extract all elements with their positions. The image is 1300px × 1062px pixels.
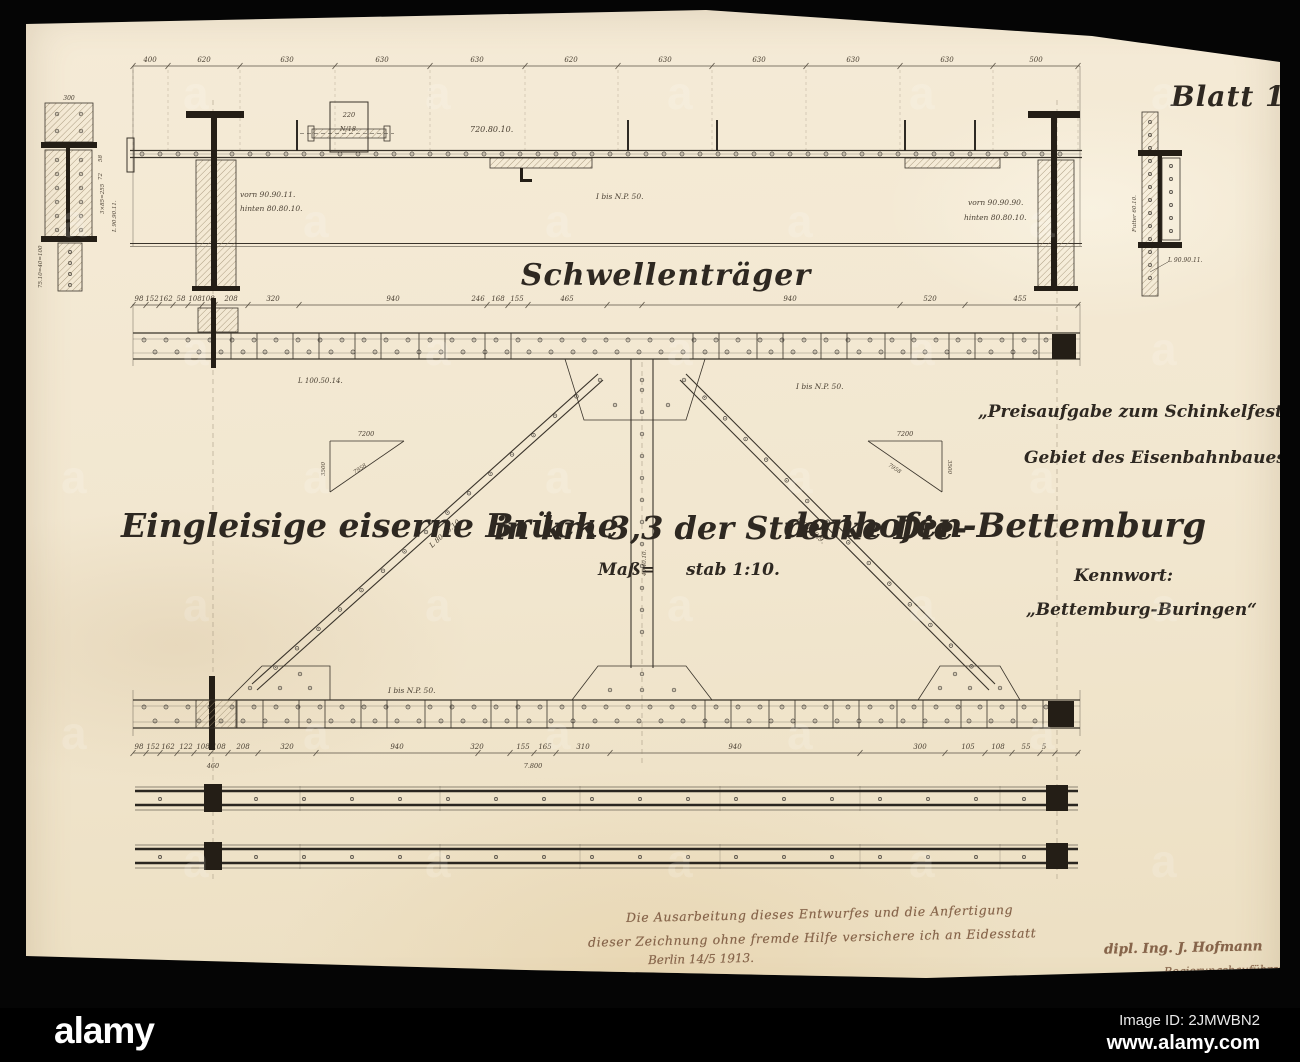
construction-lines bbox=[213, 100, 1057, 880]
rivet-dot bbox=[518, 340, 519, 341]
rivet-dot bbox=[320, 707, 321, 708]
splice-box bbox=[361, 700, 387, 728]
label-tri-left-hyp: 7958 bbox=[353, 463, 368, 476]
rivet-dot bbox=[540, 707, 541, 708]
rivet-dot bbox=[848, 340, 849, 341]
rivet-dot bbox=[688, 799, 689, 800]
rivet-dot bbox=[749, 352, 750, 353]
rivet-dot bbox=[661, 721, 662, 722]
dim-label: 620 bbox=[564, 56, 578, 64]
dim-label: 630 bbox=[375, 56, 389, 64]
rivet-dot bbox=[615, 405, 616, 406]
rivet-dot bbox=[804, 340, 805, 341]
rivet-dot bbox=[958, 340, 959, 341]
rivet-dot bbox=[551, 352, 552, 353]
label-detail-left-d5: 72 bbox=[98, 173, 104, 180]
rivet-dot bbox=[331, 352, 332, 353]
rivet-dot bbox=[815, 721, 816, 722]
rivet-dot bbox=[386, 340, 387, 341]
alamy-logo: alamy bbox=[54, 1010, 154, 1052]
dim-label: 122 bbox=[179, 743, 193, 751]
rivet-dot bbox=[1171, 231, 1172, 232]
rivet-dot bbox=[980, 707, 981, 708]
rivet-dot bbox=[595, 352, 596, 353]
drawing-sheet: 4006206306306306206306306306305009815216… bbox=[26, 10, 1280, 1002]
rivet-dot bbox=[903, 721, 904, 722]
rivet-dot bbox=[469, 493, 470, 494]
rivet-dot bbox=[430, 707, 431, 708]
rivet-dot bbox=[304, 799, 305, 800]
dim-label: 108 bbox=[188, 295, 202, 303]
rivet-dot bbox=[1171, 192, 1172, 193]
rivet-dot bbox=[496, 799, 497, 800]
label-chord-profile: I bis N.P. 50. bbox=[795, 382, 843, 391]
rivet-dot bbox=[892, 707, 893, 708]
rivet-dot bbox=[448, 857, 449, 858]
label-tri-left-top: 7200 bbox=[358, 430, 375, 438]
splice-box bbox=[961, 700, 987, 728]
rivet-dot bbox=[955, 674, 956, 675]
rivet-dot bbox=[617, 721, 618, 722]
rivet-dot bbox=[592, 799, 593, 800]
rivet-dot bbox=[361, 590, 362, 591]
rivet-dot bbox=[584, 340, 585, 341]
rivet-dot bbox=[672, 340, 673, 341]
rivet-dot bbox=[507, 352, 508, 353]
dim-label: 300 bbox=[913, 743, 927, 751]
label-box-profile: N/18. bbox=[339, 125, 358, 133]
dim-label: 320 bbox=[266, 295, 280, 303]
rivet-dot bbox=[771, 352, 772, 353]
rivet-dot bbox=[177, 721, 178, 722]
label-detail-left-d1: 3×85=255 bbox=[100, 183, 106, 214]
rivet-dot bbox=[400, 799, 401, 800]
handwritten-signature: dipl. Ing. J. Hofmann bbox=[1104, 938, 1263, 957]
rivet-dot bbox=[617, 352, 618, 353]
rivet-dot bbox=[991, 352, 992, 353]
rivet-dot bbox=[859, 352, 860, 353]
rivet-dot bbox=[265, 352, 266, 353]
label-box-width: 220 bbox=[342, 111, 355, 119]
rivet-dot bbox=[928, 857, 929, 858]
splice-box bbox=[491, 700, 517, 728]
rivet-dot bbox=[880, 857, 881, 858]
label-detail-left-300: 300 bbox=[63, 95, 75, 102]
rivet-dot bbox=[496, 707, 497, 708]
bottom-chord bbox=[133, 676, 1080, 750]
label-chord-angle: L 100.50.14. bbox=[297, 377, 343, 385]
rivet-dot bbox=[639, 721, 640, 722]
rivet-dot bbox=[936, 707, 937, 708]
scale-label-part1: Maß= bbox=[598, 560, 655, 580]
rivet-dot bbox=[650, 340, 651, 341]
rivet-dot bbox=[243, 721, 244, 722]
dim-label: 5 bbox=[1042, 743, 1047, 751]
rivet-dot bbox=[188, 340, 189, 341]
rivet-dot bbox=[727, 721, 728, 722]
rivet-dot bbox=[694, 707, 695, 708]
rivet-dot bbox=[304, 857, 305, 858]
rivet-dot bbox=[188, 707, 189, 708]
dimE: 9815216212210810820832094032015516531094… bbox=[131, 743, 1081, 756]
keyword-label: Kennwort: bbox=[1074, 566, 1173, 586]
rivet-dot bbox=[903, 352, 904, 353]
rivet-dot bbox=[881, 721, 882, 722]
rivet-dot bbox=[793, 352, 794, 353]
label-profile-bottom: I bis N.P. 50. bbox=[387, 686, 435, 695]
rivet-dot bbox=[256, 799, 257, 800]
dim-label: 152 bbox=[145, 295, 159, 303]
rivet-dot bbox=[738, 340, 739, 341]
rivet-dot bbox=[694, 340, 695, 341]
rivet-dot bbox=[160, 799, 161, 800]
splice-box bbox=[547, 700, 573, 728]
rivet-dot bbox=[287, 721, 288, 722]
rivet-dot bbox=[408, 707, 409, 708]
rivet-dot bbox=[914, 340, 915, 341]
rivet-dot bbox=[782, 707, 783, 708]
rivet-dot bbox=[736, 857, 737, 858]
rivet-dot bbox=[544, 799, 545, 800]
rivet-dot bbox=[1000, 688, 1001, 689]
rivet-dot bbox=[928, 799, 929, 800]
rivet-dot bbox=[807, 501, 808, 502]
top-chord-plan bbox=[133, 298, 1080, 420]
rivet-dot bbox=[980, 340, 981, 341]
rivet-dot bbox=[400, 857, 401, 858]
rivet-dot bbox=[254, 707, 255, 708]
rivet-dot bbox=[826, 707, 827, 708]
rivet-dot bbox=[452, 340, 453, 341]
stock-photo-page: 4006206306306306206306306306305009815216… bbox=[0, 0, 1300, 1062]
rivet-dot bbox=[650, 707, 651, 708]
competition-line2: Gebiet des Eisenbahnbaues.“ bbox=[1024, 448, 1280, 468]
rivet-dot bbox=[628, 707, 629, 708]
rivet-dot bbox=[496, 340, 497, 341]
slope-triangle-left bbox=[330, 441, 404, 492]
dim-label: 630 bbox=[752, 56, 766, 64]
dim-label: 630 bbox=[470, 56, 484, 64]
rivet-dot bbox=[736, 799, 737, 800]
rivet-dot bbox=[642, 674, 643, 675]
rivet-dot bbox=[342, 707, 343, 708]
rivet-dot bbox=[725, 418, 726, 419]
rivet-dot bbox=[837, 721, 838, 722]
rivet-dot bbox=[177, 352, 178, 353]
dimB: 9815216258108108208320940246168155465940… bbox=[131, 295, 1081, 308]
rivet-dot bbox=[408, 340, 409, 341]
dim-label: 520 bbox=[923, 295, 937, 303]
rivet-dot bbox=[760, 340, 761, 341]
rivet-dot bbox=[463, 352, 464, 353]
label-hinten-right: hinten 80.80.10. bbox=[964, 213, 1027, 222]
dim-label: 105 bbox=[961, 743, 975, 751]
rivet-dot bbox=[1046, 340, 1047, 341]
dim-label: 208 bbox=[235, 743, 250, 751]
rivet-dot bbox=[155, 352, 156, 353]
dim-label: 320 bbox=[470, 743, 484, 751]
splice-box bbox=[419, 333, 445, 359]
rivet-dot bbox=[298, 707, 299, 708]
rivet-dot bbox=[144, 340, 145, 341]
rivet-dot bbox=[1035, 352, 1036, 353]
dim-label: 940 bbox=[728, 743, 742, 751]
rivet-dot bbox=[881, 352, 882, 353]
rivet-dot bbox=[250, 688, 251, 689]
rivet-dot bbox=[668, 405, 669, 406]
handwritten-role: Regierungsbauführer bbox=[1164, 963, 1280, 979]
dim-label: 620 bbox=[197, 56, 211, 64]
rivet-dot bbox=[404, 551, 405, 552]
rivet-dot bbox=[628, 340, 629, 341]
label-tri-right-top: 7200 bbox=[897, 430, 914, 438]
label-vorn-left: vorn 90.90.11. bbox=[240, 190, 295, 199]
rivet-dot bbox=[889, 583, 890, 584]
rivet-dot bbox=[782, 340, 783, 341]
label-profile-top: I bis N.P. 50. bbox=[595, 192, 643, 201]
rivet-dot bbox=[950, 645, 951, 646]
rivet-dot bbox=[555, 415, 556, 416]
rivet-dot bbox=[375, 352, 376, 353]
slope-triangle-right bbox=[868, 441, 942, 492]
main-title-part3: denhofen-Bettemburg bbox=[784, 506, 1206, 546]
rivet-dot bbox=[727, 352, 728, 353]
dim-label: 108 bbox=[991, 743, 1005, 751]
rivet-dot bbox=[870, 707, 871, 708]
rivet-dot bbox=[221, 352, 222, 353]
rivet-dot bbox=[1171, 179, 1172, 180]
label-detail-right-angle: L 90.90.11. bbox=[1167, 257, 1203, 264]
rivet-dot bbox=[448, 799, 449, 800]
splice-box bbox=[897, 700, 923, 728]
rivet-dot bbox=[452, 707, 453, 708]
dim-label: 162 bbox=[161, 743, 175, 751]
rivet-dot bbox=[1002, 707, 1003, 708]
splice-box bbox=[485, 333, 511, 359]
rivet-dot bbox=[254, 340, 255, 341]
rivet-dot bbox=[1024, 707, 1025, 708]
rivet-dot bbox=[674, 690, 675, 691]
rivet-dot bbox=[606, 340, 607, 341]
rivet-dot bbox=[832, 857, 833, 858]
splice-box bbox=[769, 700, 795, 728]
rivet-dot bbox=[1013, 721, 1014, 722]
rivet-dot bbox=[529, 352, 530, 353]
rivet-dot bbox=[474, 707, 475, 708]
dim-label: 630 bbox=[658, 56, 672, 64]
rivet-dot bbox=[771, 721, 772, 722]
dim-label: 500 bbox=[1029, 56, 1043, 64]
rivet-dot bbox=[331, 721, 332, 722]
dim-label: 940 bbox=[386, 295, 400, 303]
rivet-dot bbox=[562, 707, 563, 708]
handwritten-place-date: Berlin 14/5 1913. bbox=[648, 951, 754, 967]
rivet-dot bbox=[353, 352, 354, 353]
rivet-dot bbox=[930, 625, 931, 626]
rivet-dot bbox=[1002, 340, 1003, 341]
rivet-dot bbox=[969, 352, 970, 353]
rivet-dot bbox=[640, 799, 641, 800]
rivet-dot bbox=[309, 721, 310, 722]
rivet-dot bbox=[386, 707, 387, 708]
splice-box bbox=[1017, 700, 1043, 728]
keyword-value: „Bettemburg-Buringen“ bbox=[1026, 600, 1257, 620]
rivet-dot bbox=[661, 352, 662, 353]
rivet-dot bbox=[704, 397, 705, 398]
splice-box bbox=[821, 333, 847, 359]
rivet-dot bbox=[976, 857, 977, 858]
rivet-dot bbox=[683, 721, 684, 722]
rivet-dot bbox=[155, 721, 156, 722]
dim-label: 455 bbox=[1012, 295, 1027, 303]
rivet-dot bbox=[353, 721, 354, 722]
rivet-dot bbox=[474, 340, 475, 341]
rivet-dot bbox=[947, 352, 948, 353]
rivet-dot bbox=[199, 352, 200, 353]
rivet-dot bbox=[837, 352, 838, 353]
rail-strip-1 bbox=[135, 784, 1078, 812]
rivet-dot bbox=[232, 340, 233, 341]
rivet-dot bbox=[463, 721, 464, 722]
rivet-dot bbox=[642, 478, 643, 479]
rail-strips bbox=[135, 784, 1078, 870]
rivet-dot bbox=[683, 352, 684, 353]
rivet-dot bbox=[749, 721, 750, 722]
rivet-dot bbox=[936, 340, 937, 341]
rivet-dot bbox=[540, 340, 541, 341]
rivet-dot bbox=[914, 707, 915, 708]
rivet-dot bbox=[297, 648, 298, 649]
dim-label: 165 bbox=[538, 743, 552, 751]
rivet-dot bbox=[705, 352, 706, 353]
image-id-block: Image ID: 2JMWBN2 www.alamy.com bbox=[1107, 1012, 1260, 1055]
rivet-dot bbox=[518, 707, 519, 708]
label-cover-plate: 720.80.10. bbox=[470, 125, 513, 134]
label-detail-left-d3: 75.10=40=100 bbox=[38, 245, 44, 288]
sheet-number: Blatt 10. bbox=[1171, 80, 1280, 113]
rail-strip-2 bbox=[135, 842, 1078, 870]
rivet-dot bbox=[144, 707, 145, 708]
alamy-url[interactable]: www.alamy.com bbox=[1107, 1032, 1260, 1055]
dim-label: 400 bbox=[142, 56, 157, 64]
dim-label: 630 bbox=[940, 56, 954, 64]
splice-box bbox=[425, 700, 451, 728]
rivet-dot bbox=[496, 857, 497, 858]
rivet-dot bbox=[529, 721, 530, 722]
dim-label: 630 bbox=[846, 56, 860, 64]
splice-box bbox=[949, 333, 975, 359]
dim-label: 310 bbox=[576, 743, 590, 751]
rivet-dot bbox=[276, 340, 277, 341]
rivet-dot bbox=[309, 352, 310, 353]
rivet-dot bbox=[1024, 340, 1025, 341]
dim-label: 58 bbox=[177, 295, 186, 303]
rivet-dot bbox=[300, 674, 301, 675]
rivet-dot bbox=[1035, 721, 1036, 722]
rivet-dot bbox=[784, 857, 785, 858]
rivet-dot bbox=[397, 352, 398, 353]
left-section-detail bbox=[41, 103, 97, 291]
splice-box bbox=[231, 333, 257, 359]
rivet-dot bbox=[551, 721, 552, 722]
rivet-dot bbox=[1046, 707, 1047, 708]
rivet-dot bbox=[793, 721, 794, 722]
rivet-dot bbox=[592, 857, 593, 858]
rivet-dot bbox=[672, 707, 673, 708]
rivet-dot bbox=[383, 570, 384, 571]
rivet-dot bbox=[364, 707, 365, 708]
rivet-dot bbox=[610, 690, 611, 691]
dim-label: 246 bbox=[470, 295, 485, 303]
rivet-dot bbox=[364, 340, 365, 341]
image-id: Image ID: 2JMWBN2 bbox=[1107, 1012, 1260, 1029]
dim-label: 940 bbox=[390, 743, 404, 751]
rivet-dot bbox=[716, 707, 717, 708]
rivet-dot bbox=[512, 454, 513, 455]
rivet-dot bbox=[976, 799, 977, 800]
stock-photo-bar: alamy Image ID: 2JMWBN2 www.alamy.com bbox=[0, 1008, 1300, 1062]
rivet-dot bbox=[276, 707, 277, 708]
dim-label: 162 bbox=[159, 295, 173, 303]
rivet-dot bbox=[310, 688, 311, 689]
rivet-dot bbox=[815, 352, 816, 353]
rivet-dot bbox=[166, 340, 167, 341]
splice-box bbox=[237, 700, 263, 728]
dim-label: 98 bbox=[135, 743, 144, 751]
rivet-dot bbox=[925, 721, 926, 722]
label-detail-right-liner: Futter 60.10. bbox=[1132, 195, 1138, 233]
label-detail-left-d2: L 90.90.11. bbox=[112, 200, 118, 233]
rivet-dot bbox=[784, 799, 785, 800]
splice-box bbox=[299, 700, 325, 728]
rivet-dot bbox=[1024, 857, 1025, 858]
rivet-dot bbox=[832, 799, 833, 800]
rivet-dot bbox=[738, 707, 739, 708]
rivet-dot bbox=[342, 340, 343, 341]
rivet-dot bbox=[573, 352, 574, 353]
stiffener-posts bbox=[297, 120, 975, 151]
label-sub-left: 460 bbox=[206, 762, 219, 770]
dim-label: 155 bbox=[516, 743, 530, 751]
rivet-dot bbox=[210, 340, 211, 341]
dimA: 400620630630630620630630630630500 bbox=[131, 56, 1081, 150]
rivet-dot bbox=[892, 340, 893, 341]
rivet-dot bbox=[441, 352, 442, 353]
rivet-dot bbox=[804, 707, 805, 708]
rivet-dot bbox=[958, 707, 959, 708]
rivet-dot bbox=[600, 380, 601, 381]
rivet-dot bbox=[243, 352, 244, 353]
rivet-dot bbox=[490, 473, 491, 474]
splice-box bbox=[355, 333, 381, 359]
rivet-dot bbox=[256, 857, 257, 858]
splice-box bbox=[885, 333, 911, 359]
rivet-dot bbox=[716, 340, 717, 341]
label-vorn-right: vorn 90.90.90. bbox=[968, 198, 1023, 207]
rivet-dot bbox=[640, 857, 641, 858]
rivet-dot bbox=[430, 340, 431, 341]
rivet-dot bbox=[870, 340, 871, 341]
dim-label: 465 bbox=[559, 295, 574, 303]
label-tri-right-side: 3500 bbox=[946, 460, 952, 474]
rivet-dot bbox=[925, 352, 926, 353]
rivet-dot bbox=[352, 857, 353, 858]
splice-box bbox=[757, 333, 783, 359]
rivet-dot bbox=[684, 380, 685, 381]
dim-label: 98 bbox=[135, 295, 144, 303]
rivet-dot bbox=[166, 707, 167, 708]
rivet-dot bbox=[760, 707, 761, 708]
